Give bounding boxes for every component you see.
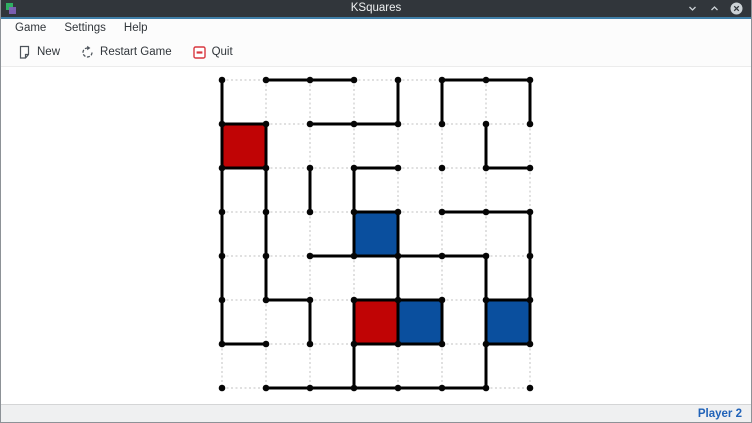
board-dot (263, 121, 270, 128)
new-document-icon (17, 45, 32, 60)
quit-label: Quit (212, 46, 233, 58)
board-dot (307, 165, 314, 172)
current-player-label: Player 2 (698, 408, 742, 420)
board-dot (351, 385, 358, 392)
claimed-square-blue (486, 300, 530, 344)
board-dot (395, 385, 402, 392)
new-game-button[interactable]: New (13, 43, 64, 62)
board-dot (439, 385, 446, 392)
board-dot (527, 341, 534, 348)
board-dot (307, 385, 314, 392)
board-dot (263, 341, 270, 348)
board-dot (483, 209, 490, 216)
board-dot (263, 253, 270, 260)
menu-game[interactable]: Game (6, 19, 55, 38)
board-dot (351, 165, 358, 172)
quit-button[interactable]: Quit (188, 43, 237, 62)
close-icon[interactable] (730, 2, 743, 15)
board-dot (527, 297, 534, 304)
board-area (1, 67, 751, 404)
board-dot (527, 77, 534, 84)
board-dot (395, 165, 402, 172)
restart-game-button[interactable]: Restart Game (76, 43, 176, 62)
window-controls (686, 2, 751, 15)
board-dot (307, 209, 314, 216)
board-dot (395, 341, 402, 348)
board-dot (219, 121, 226, 128)
quit-icon (192, 45, 207, 60)
claimed-square-red (354, 300, 398, 344)
board-dot (483, 77, 490, 84)
board-dot (351, 77, 358, 84)
status-bar: Player 2 (1, 404, 751, 423)
board-dot (439, 165, 446, 172)
board-dot (483, 165, 490, 172)
board-dot (483, 297, 490, 304)
minimize-icon[interactable] (686, 2, 699, 15)
board-dot (395, 253, 402, 260)
board-dot (263, 385, 270, 392)
board-dot (527, 253, 534, 260)
board-dot (395, 121, 402, 128)
board-dot (395, 77, 402, 84)
board-dot (483, 253, 490, 260)
menu-settings[interactable]: Settings (55, 19, 115, 38)
board-dot (351, 297, 358, 304)
board-dot (483, 341, 490, 348)
board-dot (395, 209, 402, 216)
board-dot (439, 121, 446, 128)
board-dot (219, 253, 226, 260)
board-dot (263, 209, 270, 216)
board-dot (439, 297, 446, 304)
board-dot (263, 165, 270, 172)
board-dot (219, 297, 226, 304)
claimed-squares (222, 124, 530, 344)
board-dot (527, 165, 534, 172)
restart-game-label: Restart Game (100, 46, 172, 58)
board-dot (219, 165, 226, 172)
claimed-square-red (222, 124, 266, 168)
board-dot (263, 297, 270, 304)
game-board[interactable] (1, 67, 752, 404)
claimed-square-blue (398, 300, 442, 344)
toolbar: New Restart Game Quit (1, 38, 751, 67)
menu-help[interactable]: Help (115, 19, 157, 38)
board-dot (527, 121, 534, 128)
board-dot (219, 341, 226, 348)
board-dot (351, 253, 358, 260)
board-dot (527, 209, 534, 216)
board-dot (527, 385, 534, 392)
claimed-square-blue (354, 212, 398, 256)
menu-bar: Game Settings Help (1, 19, 751, 38)
board-dot (219, 209, 226, 216)
board-dot (307, 77, 314, 84)
board-dot (219, 385, 226, 392)
board-dot (439, 77, 446, 84)
board-dot (351, 341, 358, 348)
board-dot (219, 77, 226, 84)
restart-icon (80, 45, 95, 60)
board-dot (439, 253, 446, 260)
board-dot (439, 341, 446, 348)
board-dot (307, 297, 314, 304)
window-title: KSquares (1, 0, 751, 17)
board-dot (395, 297, 402, 304)
board-dot (263, 77, 270, 84)
title-bar[interactable]: KSquares (1, 0, 751, 17)
board-dot (483, 121, 490, 128)
ksquares-window: KSquares Game Settings Help (0, 0, 752, 423)
new-game-label: New (37, 46, 60, 58)
board-dot (439, 209, 446, 216)
board-dot (307, 341, 314, 348)
board-dot (307, 253, 314, 260)
board-dot (351, 209, 358, 216)
board-dot (351, 121, 358, 128)
maximize-icon[interactable] (708, 2, 721, 15)
board-dot (483, 385, 490, 392)
board-dot (307, 121, 314, 128)
